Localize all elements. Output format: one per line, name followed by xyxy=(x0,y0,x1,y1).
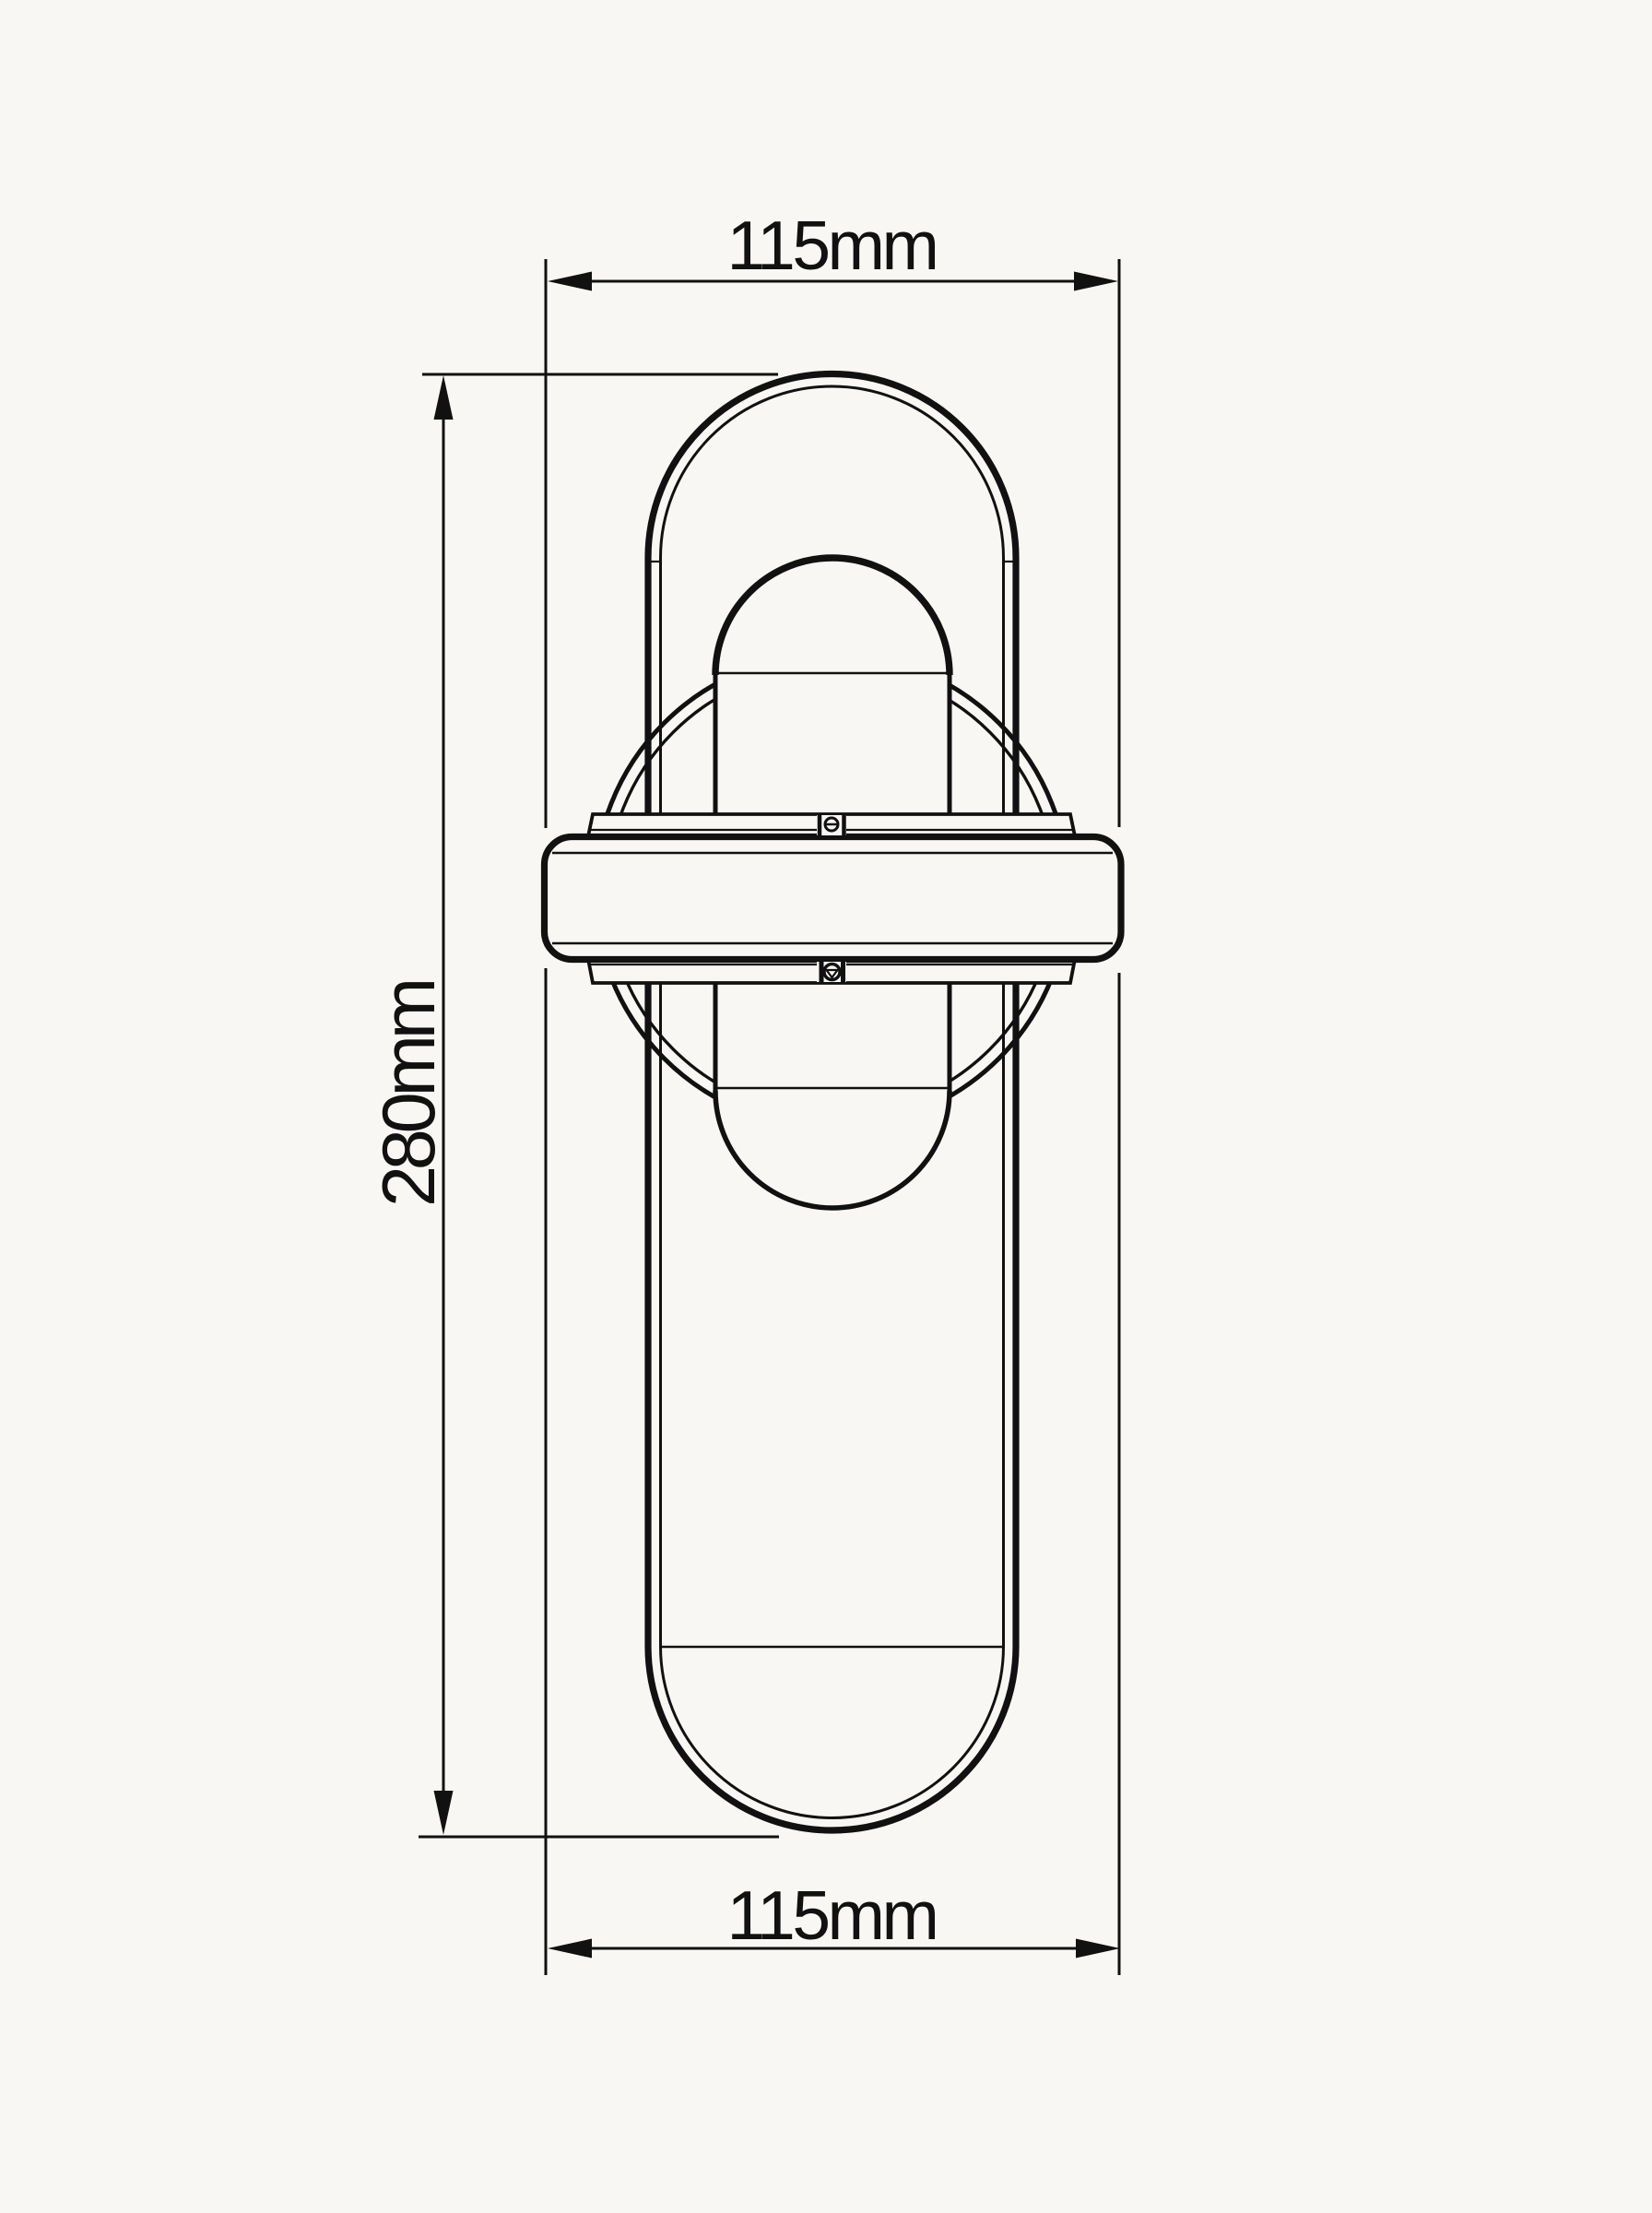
svg-text:280mm: 280mm xyxy=(368,981,451,1207)
svg-text:115mm: 115mm xyxy=(726,207,936,284)
svg-text:115mm: 115mm xyxy=(726,1876,936,1954)
